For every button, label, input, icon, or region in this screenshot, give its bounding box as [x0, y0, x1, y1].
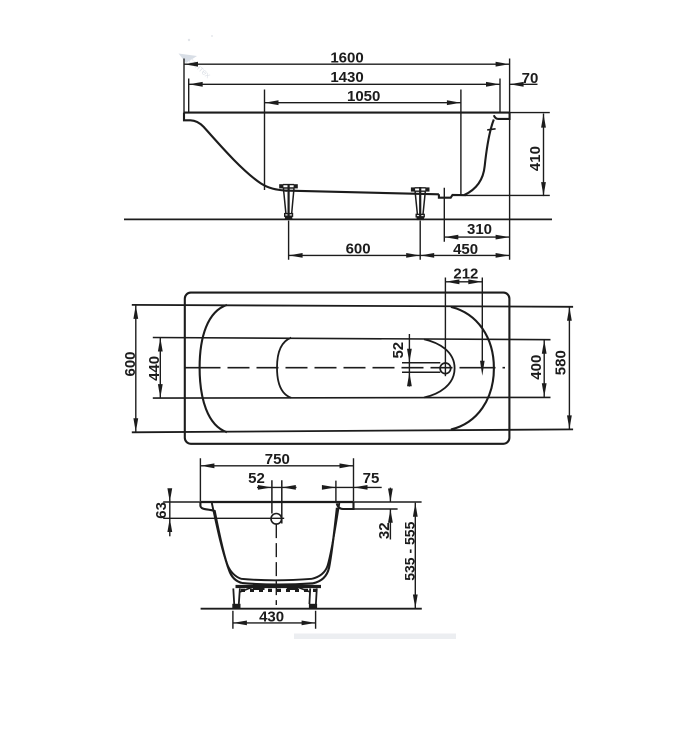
svg-text:1050: 1050	[347, 88, 380, 105]
svg-text:1430: 1430	[330, 69, 363, 86]
svg-text:400: 400	[528, 355, 545, 380]
svg-text:600: 600	[346, 241, 371, 258]
svg-text:52: 52	[390, 342, 407, 359]
svg-text:52: 52	[248, 470, 265, 487]
svg-text:212: 212	[453, 266, 478, 283]
svg-text:32: 32	[376, 522, 393, 539]
svg-text:63: 63	[153, 502, 170, 519]
svg-text:430: 430	[259, 608, 284, 625]
svg-text:535 - 555: 535 - 555	[401, 521, 417, 580]
svg-text:1600: 1600	[330, 49, 363, 66]
svg-text:450: 450	[453, 241, 478, 258]
svg-text:410: 410	[527, 146, 544, 171]
svg-text:580: 580	[553, 350, 570, 375]
svg-text:310: 310	[467, 221, 492, 238]
svg-text:440: 440	[146, 356, 163, 381]
svg-text:70: 70	[522, 70, 539, 87]
svg-text:75: 75	[363, 470, 380, 487]
svg-text:600: 600	[122, 351, 139, 376]
svg-text:750: 750	[265, 451, 290, 468]
